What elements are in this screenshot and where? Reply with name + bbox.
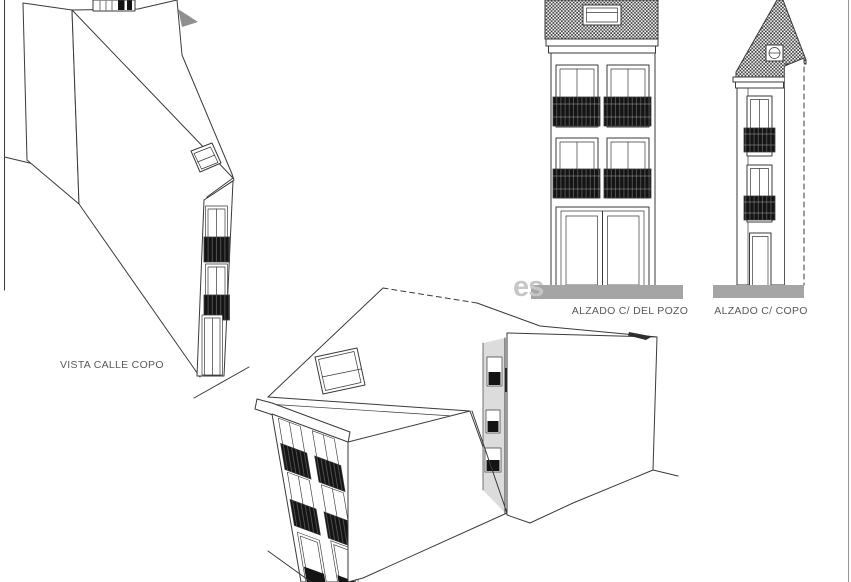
- architectural-drawing-sheet: VISTA CALLE COPO ALZADO C/ DEL POZO ALZA…: [0, 0, 851, 582]
- roof-skylight: [315, 348, 365, 394]
- line-art-canvas: [0, 0, 851, 582]
- window-with-balcony: [553, 65, 600, 127]
- cornice-upper: [733, 77, 786, 82]
- window-with-balcony: [204, 264, 230, 320]
- round-attic-window: [766, 45, 783, 61]
- watermark-logo: es: [513, 273, 543, 302]
- window-with-balcony: [744, 165, 775, 222]
- street-corner-3d-view: [255, 288, 678, 582]
- side-annex-wall: [785, 58, 805, 285]
- balcony-railing: [553, 169, 600, 198]
- window-with-balcony: [204, 206, 230, 262]
- balcony-railing: [489, 372, 501, 385]
- balcony-railing: [604, 97, 651, 126]
- alzado-del-pozo-elevation: [531, 0, 683, 299]
- balcony-railing: [204, 237, 230, 262]
- window-with-balcony: [604, 65, 651, 127]
- label-alzado-copo: ALZADO C/ COPO: [707, 305, 815, 317]
- window-with-balcony: [553, 138, 600, 198]
- label-alzado-del-pozo: ALZADO C/ DEL POZO: [568, 305, 692, 317]
- window-with-balcony: [604, 138, 651, 198]
- alzado-copo-elevation: [713, 0, 806, 298]
- vista-calle-copo-3d-view: [5, 0, 250, 398]
- cornice-lower: [736, 82, 784, 88]
- sloped-roof-plane: [268, 288, 512, 411]
- label-vista-calle-copo: VISTA CALLE COPO: [60, 359, 164, 371]
- side-wing-wall: [507, 333, 657, 523]
- ground-line-right: [653, 470, 678, 476]
- cornice-upper: [546, 39, 658, 46]
- balcony-railing: [553, 97, 600, 126]
- balcony-railing: [487, 460, 500, 471]
- entrance-door: [750, 233, 772, 287]
- small-side-windows: [485, 357, 502, 472]
- ground-strip: [713, 285, 804, 298]
- sheet-right-border: [848, 0, 850, 582]
- balcony-railing: [488, 421, 499, 432]
- balcony-railing: [744, 128, 775, 152]
- chimney: [93, 0, 135, 11]
- ground-floor-door: [202, 315, 223, 375]
- ground-strip: [531, 285, 683, 299]
- window-with-balcony: [744, 96, 775, 156]
- balcony-railing: [744, 196, 775, 220]
- balcony-railing: [604, 169, 651, 198]
- roof-dormer-window: [583, 5, 621, 25]
- rear-wall-face: [23, 3, 79, 204]
- roof-notch-shading: [178, 9, 198, 27]
- cornice-lower: [549, 46, 656, 53]
- entrance-double-door: [556, 207, 649, 288]
